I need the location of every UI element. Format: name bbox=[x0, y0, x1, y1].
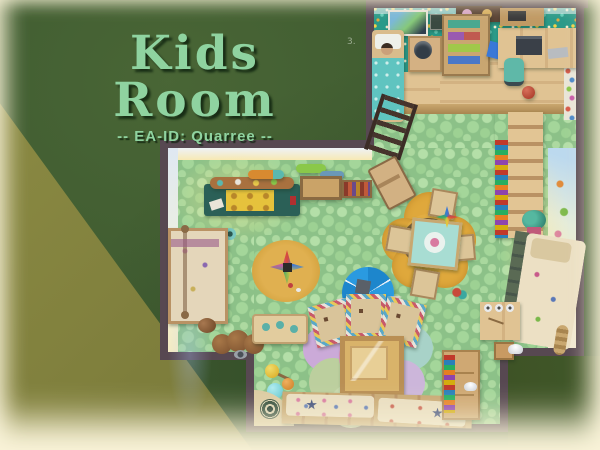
sleeping-sim-head bbox=[381, 43, 393, 55]
small-toy-white bbox=[296, 288, 301, 292]
page-title: Kids Room bbox=[40, 30, 350, 124]
mini-bookshelf bbox=[342, 180, 372, 198]
loft-nightstand bbox=[408, 36, 442, 72]
umbrella-base-block bbox=[355, 279, 371, 295]
desk-clutter bbox=[495, 304, 503, 312]
grass-notch-tint bbox=[508, 356, 600, 450]
moon-decal bbox=[262, 323, 270, 331]
bedpost-knob bbox=[181, 311, 189, 319]
bench-cushion bbox=[286, 394, 375, 418]
wall-main-left bbox=[160, 140, 168, 360]
wall-step-vertical bbox=[246, 352, 254, 432]
nursery-shelf bbox=[252, 314, 308, 344]
dartboard-toy bbox=[260, 399, 280, 419]
dresser-shelf-2 bbox=[448, 32, 480, 40]
canopy-stripe bbox=[171, 239, 219, 247]
creator-id: -- EA-ID: Quarree -- bbox=[40, 128, 350, 145]
papers bbox=[548, 47, 569, 59]
crab-doodle bbox=[423, 231, 446, 254]
small-toy-red bbox=[288, 283, 293, 288]
activity-table-switch bbox=[290, 196, 296, 205]
loft-desk-chair bbox=[504, 58, 524, 86]
kids-table bbox=[408, 218, 463, 271]
nightstand-lamp bbox=[414, 41, 432, 59]
wall-shelf-plane bbox=[248, 170, 284, 179]
wall-bottom-right-vertical bbox=[500, 348, 508, 432]
canopy-bed bbox=[168, 228, 228, 324]
stairs-book-spines bbox=[495, 140, 508, 238]
toy-chest-sheen bbox=[345, 341, 389, 381]
armchair-button bbox=[324, 317, 329, 322]
moon-decal bbox=[276, 321, 284, 329]
star-toy-center bbox=[283, 263, 292, 272]
open-dresser bbox=[442, 14, 490, 76]
kids-desk bbox=[480, 302, 520, 340]
wall-light bbox=[508, 344, 523, 354]
easel-crossbar bbox=[377, 174, 400, 189]
bookcase-spines bbox=[444, 355, 455, 413]
bookcase-shelfline bbox=[455, 372, 474, 374]
screenshot-canvas: Kids Room -- EA-ID: Quarree -- 3. bbox=[0, 0, 600, 450]
laptop bbox=[516, 36, 542, 55]
toy-chest-table bbox=[340, 336, 404, 396]
armchair-button bbox=[396, 314, 401, 319]
title-block: Kids Room -- EA-ID: Quarree -- bbox=[40, 30, 350, 145]
dresser-shelf-3 bbox=[448, 44, 480, 52]
bookcase-shelfline bbox=[455, 394, 474, 396]
desk-clutter bbox=[484, 304, 492, 312]
bedpost-knob bbox=[181, 225, 189, 233]
moon-decal bbox=[290, 325, 298, 333]
rooster-toy bbox=[452, 286, 468, 302]
balloon-yellow bbox=[265, 364, 279, 378]
wall-light bbox=[464, 382, 477, 391]
desk-pencil bbox=[488, 317, 504, 324]
printer bbox=[508, 11, 526, 21]
printer-shelf bbox=[500, 8, 544, 26]
crate-shelf bbox=[300, 176, 342, 200]
pet-bowl bbox=[234, 350, 247, 359]
balloon-orange bbox=[282, 378, 294, 390]
loft-wood-platform-ext bbox=[404, 72, 440, 104]
armchair-button bbox=[359, 309, 363, 313]
dresser-shelf-1 bbox=[448, 20, 480, 28]
desk-clutter bbox=[506, 304, 514, 312]
watermark: 3. bbox=[347, 37, 356, 47]
red-ball bbox=[522, 86, 535, 99]
dresser-shelf-4 bbox=[448, 56, 480, 64]
activity-table-top bbox=[226, 190, 274, 211]
